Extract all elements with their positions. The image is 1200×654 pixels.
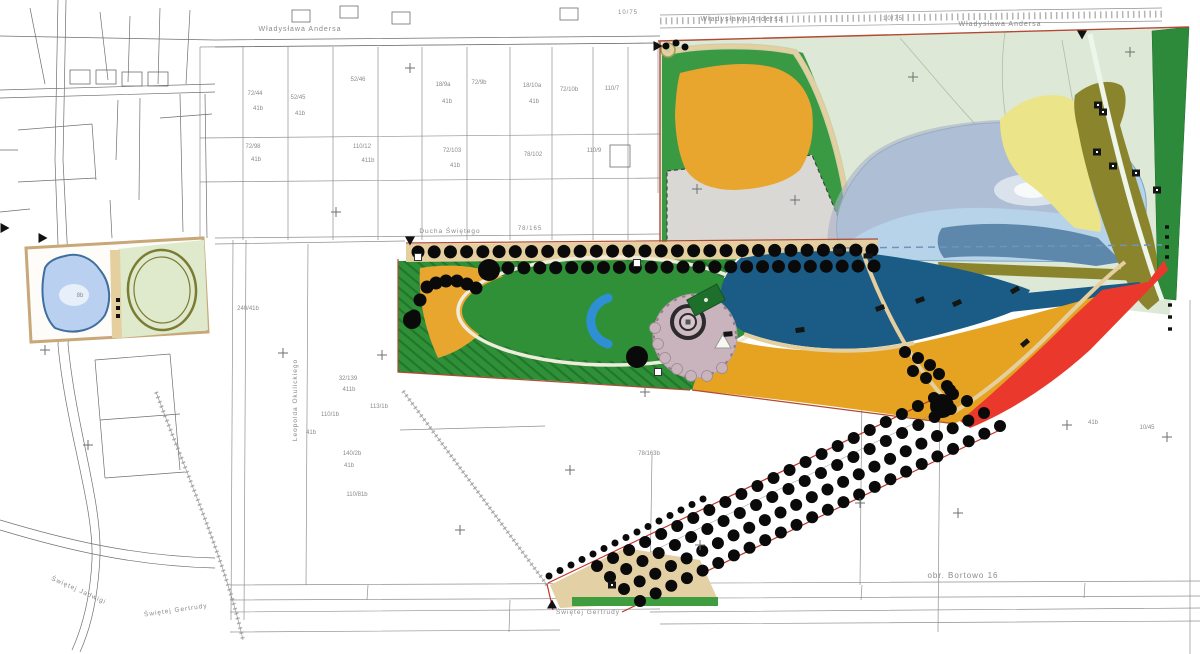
triangle-marker-icon [547,600,557,609]
tree-icon [476,245,489,258]
parcel-label: 110/12 [353,144,372,150]
tree-icon [568,562,575,569]
tree-icon [703,244,716,257]
tree-icon [620,563,632,575]
parcel-label: 41b [529,99,540,105]
tree-icon [759,534,771,546]
tree-icon [931,450,943,462]
tree-icon [655,528,667,540]
tree-icon [806,511,818,523]
tree-icon [978,428,990,440]
tree-icon [671,520,683,532]
tree-icon [994,420,1006,432]
edge-mark-icon [1168,315,1172,318]
street-label: 10/75 [883,16,903,22]
tree-icon [549,261,562,274]
tree-icon [815,467,827,479]
tree-icon [734,507,746,519]
tree-icon [916,458,928,470]
inset-mark [116,298,120,302]
building-outline [392,12,410,24]
parcel-label: 52/45 [290,95,306,101]
tree-icon [613,261,626,274]
junction-icon [655,369,662,376]
parcel-label: 72/98 [245,144,261,150]
inset-lake-highlight [59,284,89,306]
tree-icon [639,536,651,548]
junction-icon [634,260,641,267]
tree-icon [799,475,811,487]
tree-icon [581,261,594,274]
tree-icon [671,244,684,257]
parcel-label: 10/45 [1139,425,1155,431]
scallop [672,364,683,375]
tree-icon [848,432,860,444]
tree-icon [896,408,908,420]
forest-strip-east [1152,27,1189,300]
survey-cross-icon [278,348,288,358]
tree-icon [978,407,990,419]
tree-icon [546,573,553,580]
junction-icon [415,254,422,261]
tree-icon [478,259,500,281]
inset-mark [116,314,120,318]
edge-mark-icon [1165,225,1169,228]
tree-icon [947,422,959,434]
inset-center-path [110,250,122,338]
tree-icon [591,560,603,572]
tree-icon [653,547,665,559]
street-label: 78/165 [518,226,542,232]
tree-icon [853,468,865,480]
tree-icon [868,461,880,473]
tree-icon [645,261,658,274]
tree-icon [963,435,975,447]
tree-icon [685,531,697,543]
cadastral-grid-verticals [200,47,658,240]
tree-icon [597,261,610,274]
parcel-label: 41b [295,111,306,117]
tree-icon [743,522,755,534]
street-label: 10/75 [618,10,638,16]
building-outline [122,72,142,86]
triangle-marker-icon [39,233,48,243]
parcel-label: 110/7 [605,86,620,92]
tree-icon [849,244,862,257]
tree-icon [634,595,646,607]
tree-icon [661,261,674,274]
ladder-path [156,391,547,640]
parcel-label: 72/9b [471,80,487,86]
tree-icon [831,459,843,471]
masterplan-map: 72/4441b52/4541b52/4672/9841b110/12411b1… [0,0,1200,654]
tree-icon [784,244,797,257]
parcel-label: 41b [251,157,262,163]
parcel-label: 8b [77,293,84,299]
building-dot [1156,189,1158,191]
tree-icon [681,572,693,584]
tree-icon [655,244,668,257]
survey-cross-icon [565,465,575,475]
tree-icon [703,504,715,516]
tree-icon [636,555,648,567]
tree-icon [915,438,927,450]
tree-icon [720,244,733,257]
tree-icon [681,552,693,564]
tree-icon [868,260,881,273]
tree-icon [669,539,681,551]
parcel-label: 41b [344,463,355,469]
tree-icon [673,40,680,47]
tree-icon [800,456,812,468]
parcel-label: 140/2b [343,451,362,457]
tree-icon [912,400,924,412]
tree-icon [606,245,619,258]
parcel-label: 72/44 [247,91,263,97]
building-dot [1097,104,1099,106]
tree-icon [821,484,833,496]
tree-icon [744,542,756,554]
tree-icon [601,545,608,552]
tree-icon [667,512,674,519]
parcel-label: 78/102 [524,152,543,158]
tree-icon [900,466,912,478]
building-dot [1135,172,1137,174]
tree-icon [832,440,844,452]
tree-icon [692,260,705,273]
parcel-label: 72/10b [560,87,579,93]
tree-icon [701,523,713,535]
tree-icon [574,245,587,258]
tree-icon [665,580,677,592]
tree-icon [752,244,765,257]
building-dot [611,584,613,586]
tree-icon [604,571,616,583]
building-outline [292,10,310,22]
building-outline [610,145,630,167]
tree-icon [880,435,892,447]
scallop [702,371,713,382]
tree-icon [900,445,912,457]
inset-mark [116,306,120,310]
parcel-label: 411b [362,158,376,164]
tree-icon [650,587,662,599]
triangle-marker-icon [1,223,10,233]
tree-icon [947,388,959,400]
tree-icon [665,560,677,572]
survey-cross-icon [405,63,415,73]
tree-icon [962,415,974,427]
tree-icon [759,514,771,526]
street-label: Władysława Andersa [701,16,784,23]
street-label: Świętej Gertrudy [143,601,208,619]
tree-icon [612,540,619,547]
street-label: Władysława Andersa [959,21,1042,28]
parcel-label: 41b [1088,420,1099,426]
tree-icon [912,352,924,364]
parcel-label: 41b [306,430,317,436]
cadastral-grid-horizontals [200,43,660,244]
tree-icon [907,365,919,377]
parcel-label: 110/81b [346,492,368,498]
parcel-label: 52/46 [350,77,366,83]
tree-icon [899,346,911,358]
tree-icon [557,245,570,258]
tree-icon [645,523,652,530]
tree-icon [783,483,795,495]
tree-icon [700,496,707,503]
tree-icon [837,476,849,488]
building-outline [560,8,578,20]
street-label: Władysława Andersa [259,26,342,33]
parcel-label: 411b [343,387,357,393]
tree-icon [751,480,763,492]
tree-icon [820,260,833,273]
map-svg: 72/4441b52/4541b52/4672/9841b110/12411b1… [0,0,1200,654]
tree-icon [933,368,945,380]
building-outline [70,70,90,84]
tree-icon [708,260,721,273]
parcel-label: 113/1b [370,404,389,410]
parcel-label: 240/41b [237,306,259,312]
tree-icon [590,245,603,258]
tree-icon [649,568,661,580]
tree-icon [869,481,881,493]
building-outline [96,70,116,84]
tree-icon [509,245,522,258]
tree-icon [784,464,796,476]
ladder-path-rails [156,391,547,640]
building-dot [1096,151,1098,153]
tree-icon [766,491,778,503]
tree-icon [565,261,578,274]
scallop [653,339,664,350]
survey-cross-icon [83,440,93,450]
tree-icon [656,518,663,525]
street-label: Świętej Gertrudy [556,607,620,616]
tree-icon [687,512,699,524]
survey-cross-icon [640,387,650,397]
building-dot [1112,165,1114,167]
parcel-label: 110/1b [321,412,340,418]
bench-icon [864,254,873,259]
tree-icon [634,575,646,587]
tree-icon [689,501,696,508]
parcel-label: 41b [450,163,461,169]
tree-icon [924,359,936,371]
bench-icon [723,331,732,337]
tree-icon [864,424,876,436]
tree-icon [775,506,787,518]
tree-icon [768,472,780,484]
bench-icon [834,249,843,254]
tree-icon [634,529,641,536]
tree-icon [788,260,801,273]
parcel-label: 110/9 [587,148,602,154]
tree-icon [403,311,421,329]
tree-icon [444,245,457,258]
scallop [717,363,728,374]
orange-meadow-blob [675,64,813,190]
building-outline [340,6,358,18]
survey-cross-icon [1162,432,1172,442]
base-buildings [70,6,630,167]
parcel-label: 18/10a [523,83,542,89]
tree-icon [853,488,865,500]
tree-icon [837,496,849,508]
tree-icon [791,519,803,531]
tree-icon [756,260,769,273]
tree-icon [687,244,700,257]
tree-icon [502,262,515,275]
street-label: Leopolda Okulickiego [292,359,299,441]
tree-icon [724,260,737,273]
survey-cross-icon [40,345,50,355]
tree-icon [719,496,731,508]
tree-icon [775,527,787,539]
tree-icon [804,260,817,273]
tree-icon [428,245,441,258]
edge-mark-icon [1168,327,1172,330]
tree-icon [414,294,427,307]
survey-cross-icon [331,207,341,217]
tree-icon [864,443,876,455]
scallop [650,323,661,334]
tree-icon [718,515,730,527]
tree-icon [493,245,506,258]
cadastral-top-street [0,36,660,47]
tree-icon [590,551,597,558]
tree-icon [697,565,709,577]
tree-icon [607,552,619,564]
survey-cross-icon [953,508,963,518]
tree-icon [533,261,546,274]
parcel-label: 18/9a [435,82,451,88]
scallop [686,371,697,382]
tree-icon [822,504,834,516]
tree-icon [525,245,538,258]
plaza-center-square [686,320,691,325]
tree-icon [712,557,724,569]
tree-icon [517,261,530,274]
tree-icon [920,372,932,384]
tree-icon [663,43,670,50]
tree-icon [847,451,859,463]
tree-icon [880,416,892,428]
edge-mark-icon [1168,303,1172,306]
building-dot [1102,111,1104,113]
tree-icon [806,491,818,503]
tree-icon [682,44,689,51]
tree-icon [801,244,814,257]
tree-icon [728,529,740,541]
tree-icon [931,430,943,442]
street-label: obr. Bortowo 16 [927,571,998,580]
inset-path-marks [116,298,120,318]
tree-icon [618,583,630,595]
survey-cross-icon [1062,420,1072,430]
edge-mark-icon [1165,245,1169,248]
tree-icon [736,244,749,257]
tree-icon [816,448,828,460]
tree-icon [557,567,564,574]
tree-icon [896,427,908,439]
tree-icon [740,260,753,273]
tree-icon [460,245,473,258]
tree-icon [696,545,708,557]
tree-icon [750,499,762,511]
street-label: Ducha Świętego [419,226,480,235]
scallop [660,353,671,364]
tree-icon [817,244,830,257]
tree-icon [961,395,973,407]
tree-icon [884,473,896,485]
tree-icon [623,534,630,541]
tree-icon [678,507,685,514]
tree-icon [579,556,586,563]
tree-icon [790,499,802,511]
tree-icon [470,282,483,295]
parcel-label: 72/103 [443,148,462,154]
tree-icon [623,544,635,556]
tree-icon [712,537,724,549]
tree-icon [852,260,865,273]
edge-mark-icon [1165,235,1169,238]
tree-icon [735,488,747,500]
tree-icon [836,260,849,273]
west-inset-plot [26,238,208,342]
survey-cross-icon [455,525,465,535]
parcel-label: 41b [253,106,264,112]
tree-icon [677,261,690,274]
tree-icon [626,346,648,368]
edge-mark-icon [1165,255,1169,258]
parcel-label: 41b [442,99,453,105]
tree-icon [768,244,781,257]
street-label: Świętej Jadwigi [50,574,108,606]
tree-icon [622,245,635,258]
tree-icon [912,419,924,431]
parcel-label: 78/163b [638,451,660,457]
tree-icon [728,549,740,561]
tree-icon [541,245,554,258]
tree-icon [639,245,652,258]
tree-icon [884,453,896,465]
survey-cross-icon [377,350,387,360]
tree-icon [772,260,785,273]
parcel-label: 32/139 [339,376,358,382]
tree-icon [947,443,959,455]
